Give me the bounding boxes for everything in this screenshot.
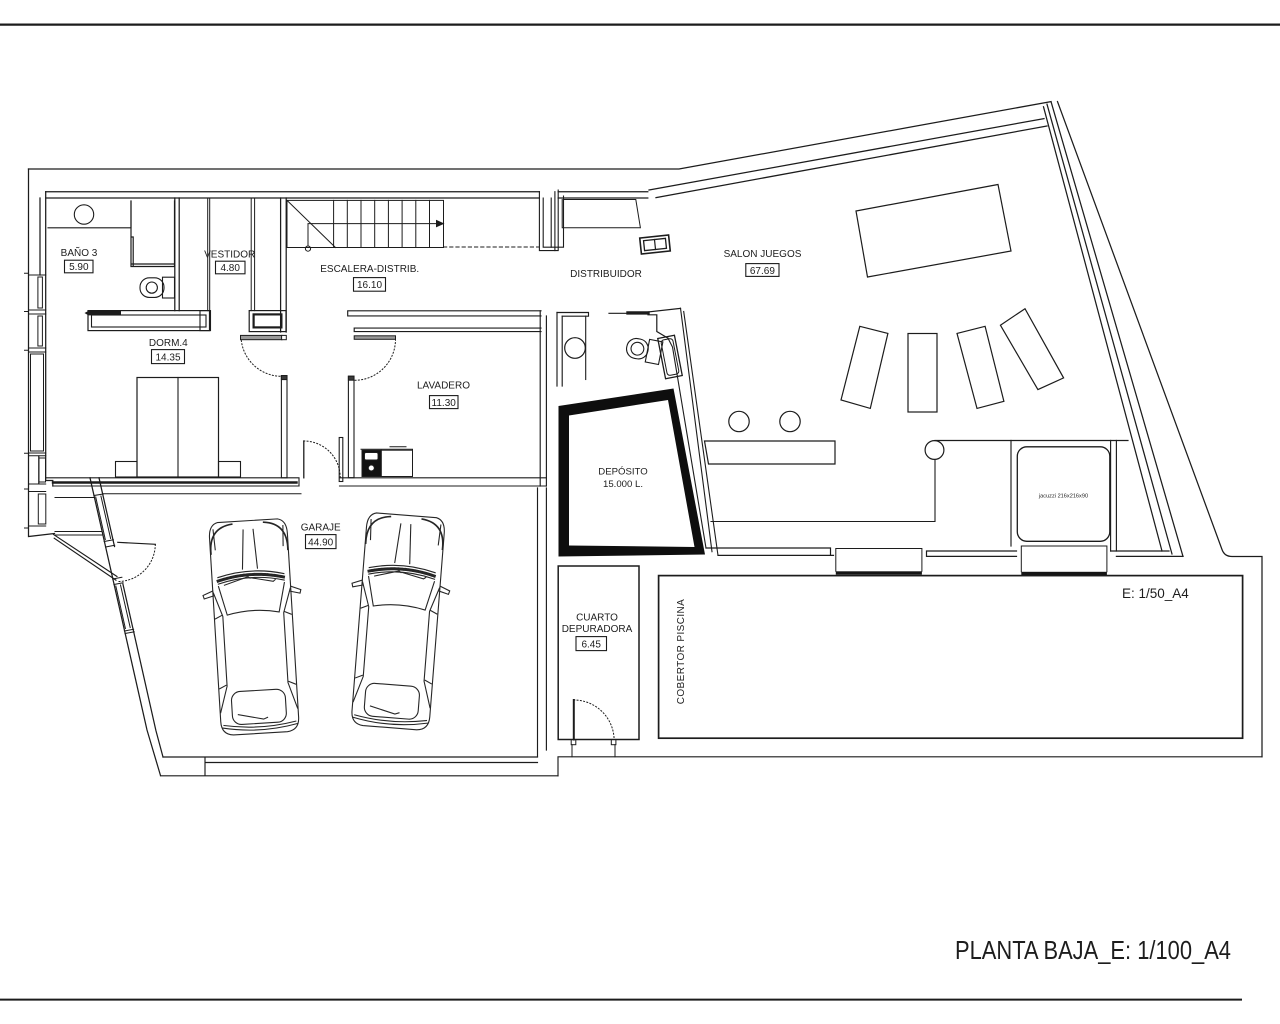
svg-text:COBERTOR PISCINA: COBERTOR PISCINA	[676, 599, 687, 705]
svg-text:GARAJE: GARAJE	[301, 523, 341, 534]
svg-text:15.000 L.: 15.000 L.	[603, 479, 643, 490]
svg-text:DEPURADORA: DEPURADORA	[562, 624, 633, 635]
svg-text:44.90: 44.90	[308, 537, 333, 548]
svg-text:6.45: 6.45	[581, 639, 601, 650]
svg-text:CUARTO: CUARTO	[576, 613, 618, 624]
svg-text:PLANTA BAJA_E: 1/100_A4: PLANTA BAJA_E: 1/100_A4	[955, 935, 1231, 965]
svg-text:14.35: 14.35	[155, 352, 180, 363]
svg-text:DORM.4: DORM.4	[149, 338, 188, 349]
svg-text:DISTRIBUIDOR: DISTRIBUIDOR	[570, 269, 642, 280]
svg-text:SALON JUEGOS: SALON JUEGOS	[724, 249, 802, 260]
svg-text:BAÑO 3: BAÑO 3	[61, 246, 98, 259]
svg-text:DEPÓSITO: DEPÓSITO	[598, 467, 647, 478]
svg-text:5.90: 5.90	[69, 262, 89, 273]
svg-text:jacuzzi 216x216x90: jacuzzi 216x216x90	[1038, 494, 1088, 500]
svg-text:ESCALERA-DISTRIB.: ESCALERA-DISTRIB.	[320, 264, 419, 275]
svg-text:VESTIDOR: VESTIDOR	[204, 249, 255, 260]
svg-text:4.80: 4.80	[220, 263, 240, 274]
svg-text:16.10: 16.10	[357, 280, 382, 291]
svg-text:E: 1/50_A4: E: 1/50_A4	[1122, 586, 1189, 601]
svg-text:67.69: 67.69	[750, 266, 775, 277]
svg-text:11.30: 11.30	[432, 398, 457, 409]
svg-text:LAVADERO: LAVADERO	[417, 381, 470, 392]
